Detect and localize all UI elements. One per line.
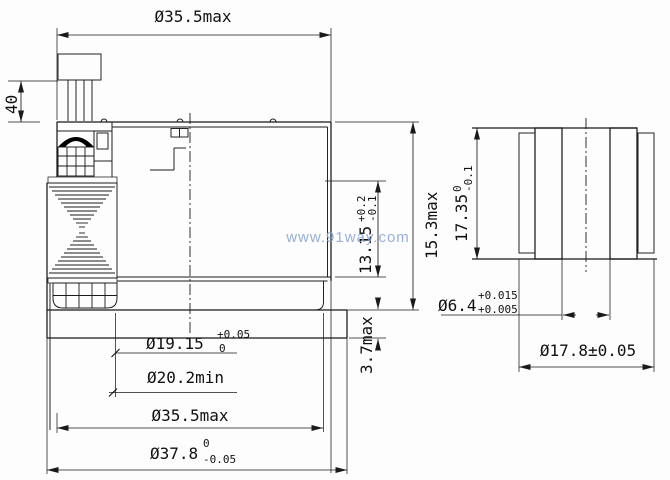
dim-lead-length-label: 40 <box>2 95 21 114</box>
right-section-view: 17.35 0 -0.1 Ø6.4 +0.015 +0.005 Ø17.8±0.… <box>438 118 657 372</box>
connector-block <box>58 54 101 121</box>
technical-drawing: Ø35.5max 40 13.15 +0.2 -0.1 15.3max <box>0 0 670 480</box>
bellows-pattern <box>49 187 115 273</box>
dim-inner-height: 15.3max <box>335 122 441 310</box>
drawing-canvas: Ø35.5max 40 13.15 +0.2 -0.1 15.3max <box>0 0 670 480</box>
dim-bushing-height-label: 17.35 <box>452 194 471 242</box>
lower-coil-grid <box>53 283 117 308</box>
upper-coil-assembly <box>57 122 112 177</box>
dim-counterbore-dia-label: Ø20.2min <box>147 368 224 387</box>
dim-lead-length: 40 <box>2 81 58 122</box>
dim-flange-thickness-label: 3.7max <box>357 316 376 374</box>
dim-bushing-od: Ø17.8±0.05 <box>519 259 654 372</box>
dim-inner-height-label: 15.3max <box>422 191 441 259</box>
dim-bore-dia-label: Ø19.15 <box>146 334 204 353</box>
dim-bushing-od-label: Ø17.8±0.05 <box>540 341 636 360</box>
dim-bushing-bore-label: Ø6.4 <box>438 296 477 315</box>
dim-counterbore-dia: Ø20.2min <box>109 368 237 397</box>
lower-coil <box>53 283 117 308</box>
internal-bracket <box>150 129 188 171</box>
dim-flange-od-tol-lower: -0.05 <box>203 453 236 466</box>
top-cap-band <box>57 119 276 131</box>
dim-bushing-height: 17.35 0 -0.1 <box>451 128 477 259</box>
dim-top-od-label: Ø35.5max <box>154 7 231 26</box>
dim-bushing-bore: Ø6.4 +0.015 +0.005 <box>438 259 610 320</box>
dim-bushing-height-tol-lower: -0.1 <box>462 166 475 193</box>
outer-ring-left <box>519 133 535 253</box>
housing-shell <box>47 122 347 310</box>
watermark-text: www.91way.com <box>285 229 410 246</box>
sleeve-right <box>610 128 637 259</box>
dim-flange-thickness: 3.7max <box>349 300 386 374</box>
dim-bushing-bore-tol-upper: +0.015 <box>478 289 518 302</box>
upper-coil-grid <box>58 147 94 176</box>
bellows-section <box>47 177 117 283</box>
dim-bore-dia-tol-lower: 0 <box>219 342 226 355</box>
outer-ring-right <box>638 133 654 253</box>
dim-bushing-bore-tol-lower: +0.005 <box>478 303 518 316</box>
dim-flange-od-tol-upper: 0 <box>203 437 210 450</box>
dim-bore-depth-tol-lower: -0.1 <box>366 196 379 223</box>
dim-bottom-od-label: Ø35.5max <box>151 406 228 425</box>
dim-flange-od-label: Ø37.8 <box>150 444 198 463</box>
sleeve-left <box>535 128 562 259</box>
dim-bore-dia-tol-upper: +0.05 <box>217 328 250 341</box>
